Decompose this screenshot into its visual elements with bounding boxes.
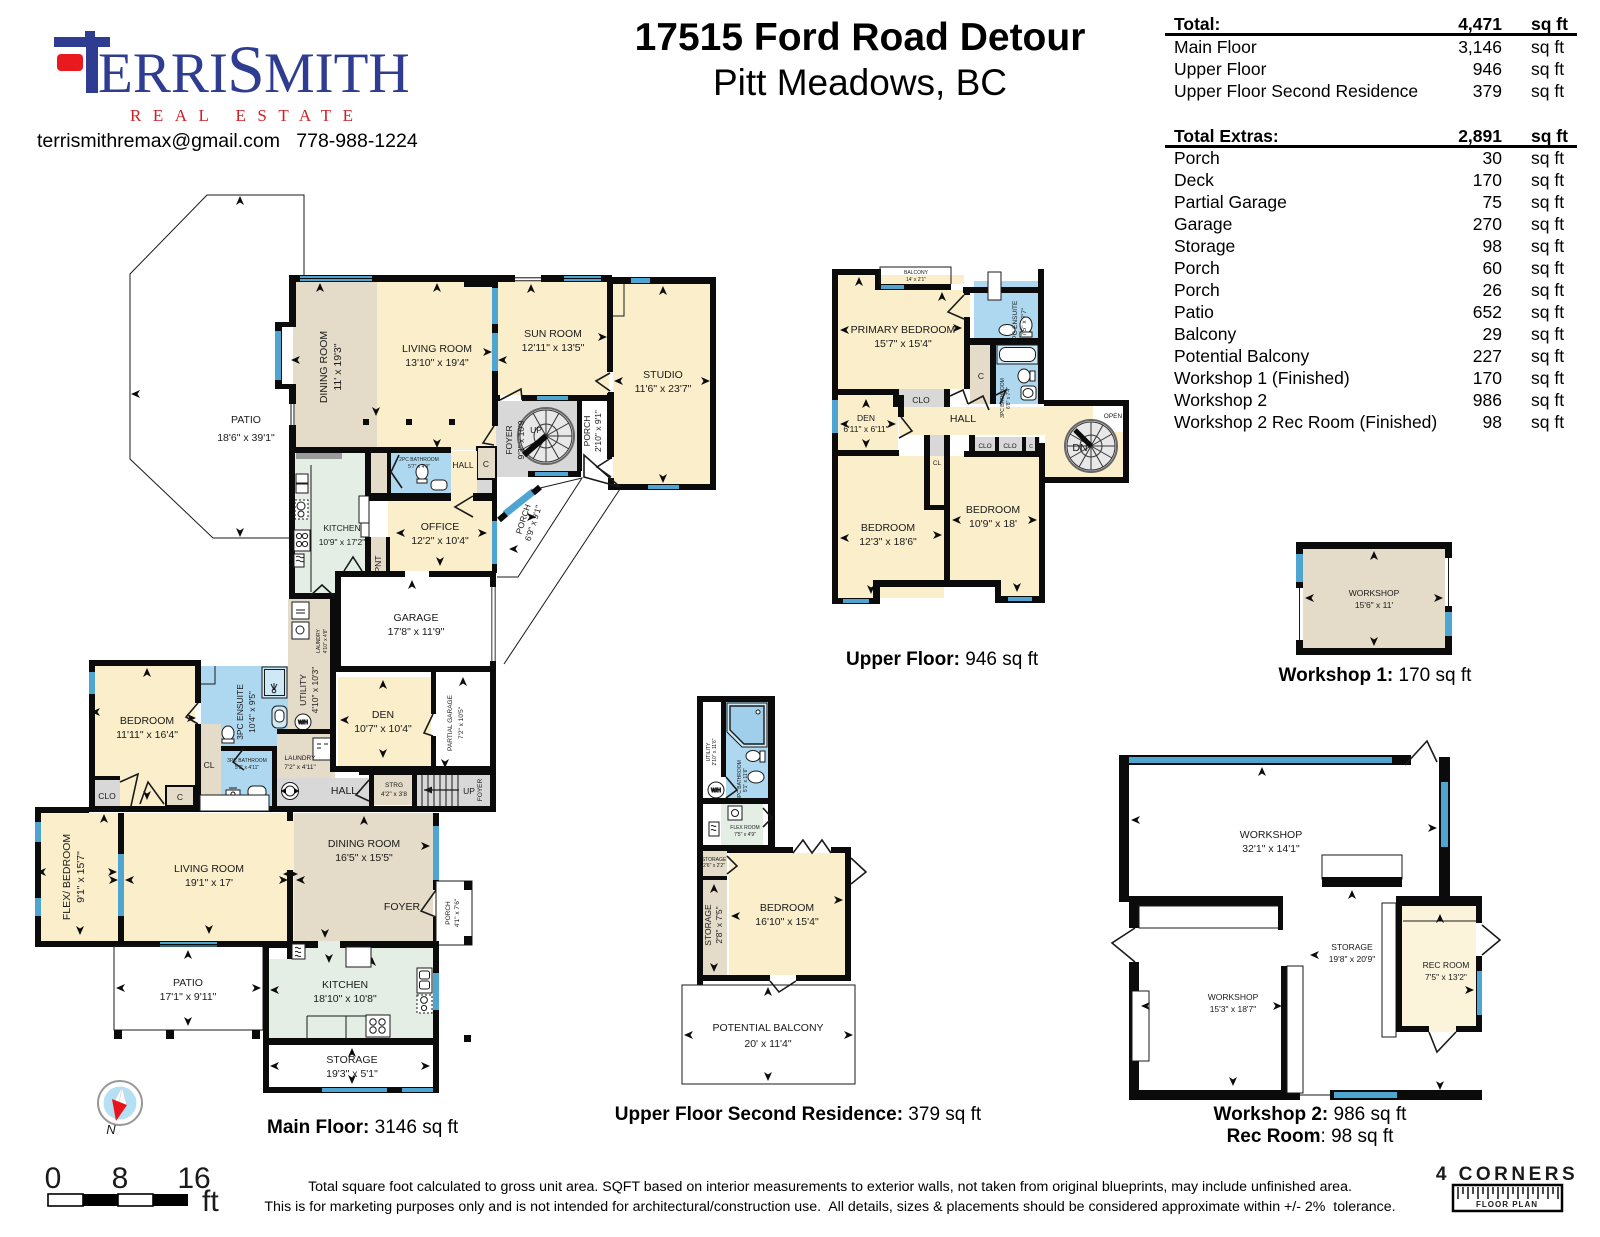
svg-text:12'2" x 10'4": 12'2" x 10'4" — [411, 535, 469, 547]
svg-text:STORAGE: STORAGE — [1331, 942, 1373, 952]
svg-text:C: C — [1029, 444, 1033, 450]
svg-text:5'7" x 4'9": 5'7" x 4'9" — [408, 464, 430, 470]
svg-text:PORCH: PORCH — [445, 901, 452, 925]
svg-text:KITCHEN: KITCHEN — [322, 979, 368, 991]
svg-text:PORCH: PORCH — [582, 416, 592, 447]
svg-text:FOYER: FOYER — [477, 779, 484, 802]
svg-text:DINING ROOM: DINING ROOM — [328, 838, 400, 850]
svg-text:7'5" x 7'7": 7'5" x 7'7" — [1021, 307, 1028, 336]
svg-text:SUN ROOM: SUN ROOM — [524, 328, 582, 340]
svg-text:PATIO: PATIO — [231, 414, 261, 426]
svg-text:20' x 11'4": 20' x 11'4" — [744, 1038, 792, 1050]
svg-text:10'9" x 18': 10'9" x 18' — [969, 518, 1017, 530]
svg-text:17'8" x 11'9": 17'8" x 11'9" — [388, 626, 445, 638]
svg-text:11'6" x 23'7": 11'6" x 23'7" — [635, 383, 692, 395]
svg-text:REC ROOM: REC ROOM — [1423, 960, 1470, 970]
svg-text:LAUNDRY: LAUNDRY — [316, 628, 322, 652]
svg-text:9'1" x 15'7": 9'1" x 15'7" — [75, 851, 87, 903]
svg-text:WORKSHOP: WORKSHOP — [1208, 992, 1259, 1002]
svg-text:16'10" x 15'4": 16'10" x 15'4" — [755, 916, 819, 928]
svg-text:4'2" x 3'8: 4'2" x 3'8 — [381, 791, 407, 798]
svg-text:7'5" x 13'2": 7'5" x 13'2" — [1425, 972, 1467, 982]
svg-text:19'1" x 17': 19'1" x 17' — [185, 877, 233, 889]
svg-text:12'3" x 18'6": 12'3" x 18'6" — [859, 536, 917, 548]
svg-text:15'6" x 11': 15'6" x 11' — [1355, 600, 1394, 610]
svg-text:W/H: W/H — [711, 788, 721, 794]
svg-text:CLO: CLO — [912, 395, 930, 405]
svg-text:9'3" x 10'9: 9'3" x 10'9 — [516, 420, 526, 459]
svg-text:CLO: CLO — [978, 443, 991, 450]
svg-text:6'11" x 6'11": 6'11" x 6'11" — [843, 424, 888, 434]
svg-text:10'9" x 17'2": 10'9" x 17'2" — [319, 537, 366, 547]
svg-text:POTENTIAL BALCONY: POTENTIAL BALCONY — [712, 1022, 823, 1034]
svg-text:FLEX ROOM: FLEX ROOM — [730, 825, 759, 831]
svg-text:14' x 2'1": 14' x 2'1" — [906, 277, 926, 283]
svg-text:12'11" x 13'5": 12'11" x 13'5" — [522, 342, 585, 354]
svg-text:HALL: HALL — [331, 785, 357, 797]
svg-text:WORKSHOP: WORKSHOP — [1349, 588, 1400, 598]
svg-text:WORKSHOP: WORKSHOP — [1240, 829, 1302, 841]
svg-text:CL: CL — [204, 760, 215, 770]
svg-text:13'10" x 19'4": 13'10" x 19'4" — [405, 357, 469, 369]
svg-text:2'10" x 9'1": 2'10" x 9'1" — [593, 410, 603, 452]
svg-text:18'10" x 10'8": 18'10" x 10'8" — [313, 993, 377, 1005]
svg-text:0: 0 — [45, 1162, 62, 1195]
svg-text:18'6" x 39'1": 18'6" x 39'1" — [217, 432, 275, 444]
svg-text:BALCONY: BALCONY — [904, 270, 929, 276]
svg-text:19'8" x 20'9": 19'8" x 20'9" — [1329, 954, 1376, 964]
svg-text:GARAGE: GARAGE — [394, 612, 439, 624]
svg-text:DINING ROOM: DINING ROOM — [318, 331, 330, 403]
svg-text:C: C — [483, 459, 489, 469]
svg-text:LIVING ROOM: LIVING ROOM — [174, 863, 244, 875]
svg-text:DEN: DEN — [857, 413, 875, 423]
svg-text:STORAGE: STORAGE — [326, 1054, 377, 1066]
svg-text:KITCHEN: KITCHEN — [323, 523, 360, 533]
svg-text:DN: DN — [1072, 442, 1087, 454]
svg-text:C: C — [978, 371, 984, 381]
svg-text:15'7" x 15'4": 15'7" x 15'4" — [874, 338, 932, 350]
svg-text:5'1" x 11'6": 5'1" x 11'6" — [743, 768, 749, 792]
svg-text:LAUNDRY: LAUNDRY — [285, 755, 317, 762]
svg-text:10'4" x 9'5": 10'4" x 9'5" — [247, 691, 257, 733]
svg-text:5'9" x 4'11": 5'9" x 4'11" — [235, 765, 259, 771]
svg-text:STORAGE: STORAGE — [703, 904, 713, 946]
svg-text:11'11" x 16'4": 11'11" x 16'4" — [116, 729, 178, 741]
svg-text:OFFICE: OFFICE — [421, 521, 460, 533]
svg-text:2PC ENSUITE: 2PC ENSUITE — [1012, 300, 1019, 343]
svg-text:HALL: HALL — [950, 413, 976, 425]
svg-text:BEDROOM: BEDROOM — [120, 715, 174, 727]
svg-text:3PC ENSUITE: 3PC ENSUITE — [235, 684, 245, 740]
svg-text:6'8" x 7'4": 6'8" x 7'4" — [1006, 387, 1012, 409]
svg-text:2PC BATHROOM: 2PC BATHROOM — [399, 457, 439, 463]
svg-text:UP: UP — [463, 786, 475, 796]
svg-text:15'3" x 18'7": 15'3" x 18'7" — [1210, 1004, 1257, 1014]
svg-text:FLEX/ BEDROOM: FLEX/ BEDROOM — [61, 834, 73, 920]
svg-text:UTILITY: UTILITY — [298, 674, 308, 706]
svg-text:4'1" x 7'6": 4'1" x 7'6" — [454, 898, 461, 927]
svg-text:CLO: CLO — [98, 791, 116, 801]
svg-text:N: N — [106, 1122, 116, 1137]
svg-text:7'2" x 4'11": 7'2" x 4'11" — [284, 764, 316, 771]
svg-text:FOYER: FOYER — [384, 901, 421, 913]
svg-text:C: C — [177, 792, 183, 802]
svg-text:CL: CL — [933, 460, 942, 467]
svg-text:BEDROOM: BEDROOM — [760, 902, 814, 914]
svg-text:W/H: W/H — [298, 720, 308, 726]
svg-text:STRG: STRG — [385, 782, 403, 789]
svg-text:CLO: CLO — [1003, 443, 1016, 450]
svg-text:PNT: PNT — [373, 556, 383, 573]
svg-text:BEDROOM: BEDROOM — [861, 522, 915, 534]
svg-text:4'10" x 4'8": 4'10" x 4'8" — [323, 628, 329, 653]
svg-text:3PC BATHROOM: 3PC BATHROOM — [227, 758, 267, 764]
svg-text:PATIO: PATIO — [173, 977, 203, 989]
svg-text:7'5" x 4'9": 7'5" x 4'9" — [734, 832, 756, 838]
svg-text:11' x 19'3": 11' x 19'3" — [332, 343, 344, 391]
svg-text:PARTIAL GARAGE: PARTIAL GARAGE — [447, 694, 454, 751]
svg-text:17'1" x 9'11": 17'1" x 9'11" — [160, 991, 217, 1003]
svg-text:32'1" x 14'1": 32'1" x 14'1" — [1242, 843, 1300, 855]
svg-text:2'8" x 7'5": 2'8" x 7'5" — [714, 906, 724, 943]
svg-text:2'10" x 11'6": 2'10" x 11'6" — [712, 738, 718, 765]
svg-text:4'10" x 10'3": 4'10" x 10'3" — [310, 667, 320, 714]
svg-text:16'5" x 15'5": 16'5" x 15'5" — [335, 852, 393, 864]
svg-text:BEDROOM: BEDROOM — [966, 504, 1020, 516]
svg-text:UP: UP — [530, 425, 542, 435]
svg-text:STUDIO: STUDIO — [643, 369, 683, 381]
svg-text:7'2" x 10'5": 7'2" x 10'5" — [458, 706, 465, 739]
svg-text:OPEN: OPEN — [1104, 413, 1123, 420]
svg-text:DEN: DEN — [372, 709, 394, 721]
svg-text:2'6" x 2'2": 2'6" x 2'2" — [703, 863, 725, 869]
svg-text:HALL: HALL — [452, 460, 474, 470]
svg-text:10'7" x 10'4": 10'7" x 10'4" — [354, 723, 412, 735]
svg-text:PRIMARY BEDROOM: PRIMARY BEDROOM — [851, 324, 956, 336]
svg-text:LIVING ROOM: LIVING ROOM — [402, 343, 472, 355]
svg-text:FOYER: FOYER — [504, 425, 514, 454]
